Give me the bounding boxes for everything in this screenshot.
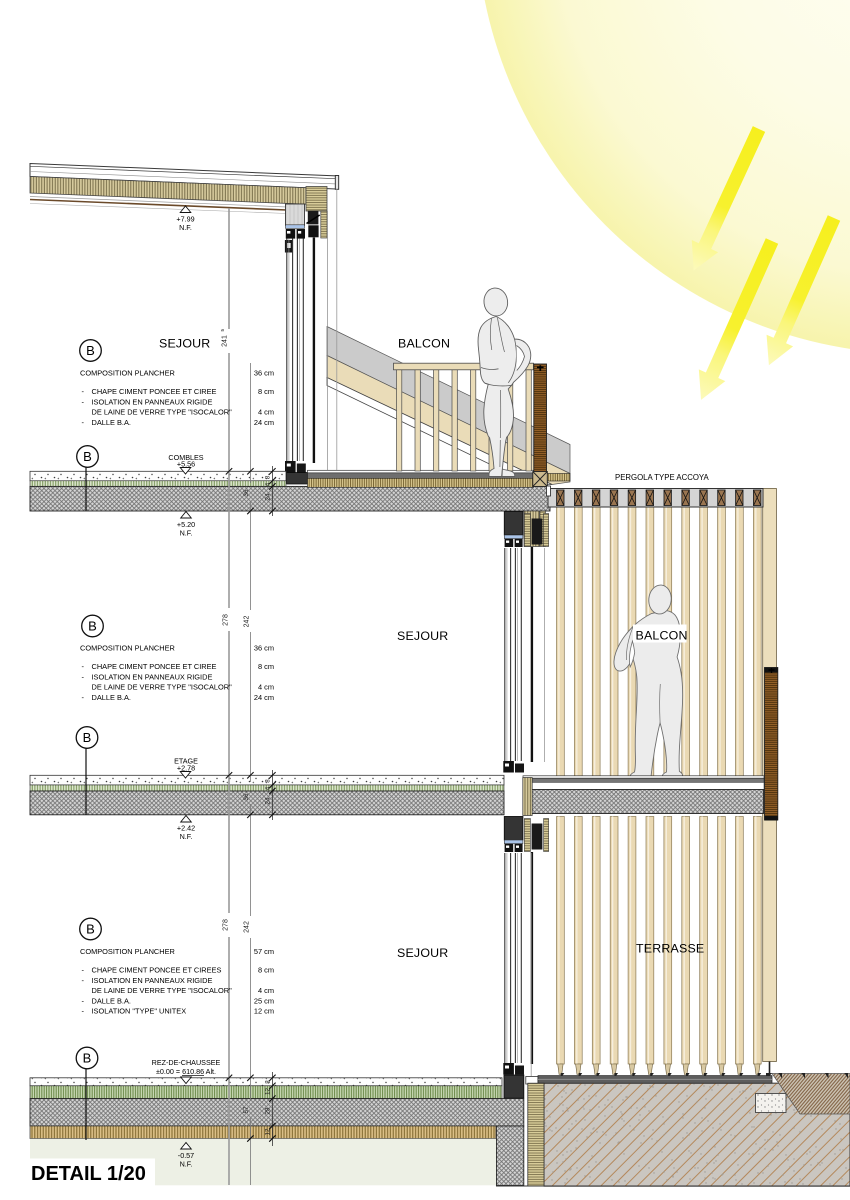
svg-text:8: 8	[265, 475, 272, 479]
svg-text:DALLE B.A.: DALLE B.A.	[92, 996, 131, 1005]
svg-text:24: 24	[265, 797, 272, 804]
svg-text:4 cm: 4 cm	[258, 683, 274, 692]
svg-text:ISOLATION EN PANNEAUX RIGIDE: ISOLATION EN PANNEAUX RIGIDE	[92, 397, 213, 406]
svg-text:SEJOUR: SEJOUR	[397, 946, 448, 960]
svg-text:B: B	[83, 730, 92, 745]
svg-text:5: 5	[220, 329, 225, 332]
svg-text:12: 12	[265, 1088, 272, 1095]
svg-text:28: 28	[265, 1107, 272, 1114]
svg-text:8 cm: 8 cm	[258, 387, 274, 396]
svg-text:ISOLATION EN PANNEAUX RIGIDE: ISOLATION EN PANNEAUX RIGIDE	[92, 672, 213, 681]
svg-text:SEJOUR: SEJOUR	[159, 337, 210, 351]
svg-text:B: B	[83, 449, 92, 464]
svg-text:COMPOSITION PLANCHER: COMPOSITION PLANCHER	[80, 644, 175, 653]
svg-text:12 cm: 12 cm	[254, 1007, 274, 1016]
svg-text:DE LAINE DE VERRE TYPE "ISOCAL: DE LAINE DE VERRE TYPE "ISOCALOR"	[92, 683, 233, 692]
svg-text:TERRASSE: TERRASSE	[636, 942, 704, 956]
svg-text:SEJOUR: SEJOUR	[397, 629, 448, 643]
svg-text:242: 242	[244, 921, 251, 933]
svg-text:36: 36	[243, 489, 250, 496]
svg-text:N.F.: N.F.	[180, 1160, 193, 1169]
svg-text:4: 4	[265, 786, 272, 790]
svg-text:DALLE B.A.: DALLE B.A.	[92, 418, 131, 427]
svg-text:DE LAINE DE VERRE TYPE "ISOCAL: DE LAINE DE VERRE TYPE "ISOCALOR"	[92, 986, 233, 995]
svg-text:8 cm: 8 cm	[258, 966, 274, 975]
svg-text:36: 36	[243, 793, 250, 800]
svg-text:24: 24	[265, 493, 272, 500]
svg-text:4 cm: 4 cm	[258, 408, 274, 417]
svg-text:8: 8	[265, 779, 272, 783]
svg-text:57 cm: 57 cm	[254, 947, 274, 956]
svg-text:B: B	[86, 922, 95, 937]
svg-text:12: 12	[265, 1128, 272, 1135]
svg-text:57: 57	[243, 1106, 250, 1113]
svg-text:24 cm: 24 cm	[254, 693, 274, 702]
svg-text:BALCON: BALCON	[398, 337, 450, 351]
svg-text:COMPOSITION PLANCHER: COMPOSITION PLANCHER	[80, 369, 175, 378]
svg-text:278: 278	[223, 614, 230, 626]
svg-text:ISOLATION "TYPE" UNITEX: ISOLATION "TYPE" UNITEX	[92, 1007, 187, 1016]
svg-text:CHAPE CIMENT PONCEE ET CIREES: CHAPE CIMENT PONCEE ET CIREES	[92, 966, 222, 975]
svg-text:DETAIL 1/20: DETAIL 1/20	[31, 1163, 146, 1185]
svg-text:N.F.: N.F.	[180, 529, 193, 538]
svg-text:N.F.: N.F.	[179, 223, 192, 232]
svg-text:25 cm: 25 cm	[254, 996, 274, 1005]
svg-text:B: B	[88, 619, 97, 634]
svg-text:8: 8	[265, 1080, 272, 1084]
svg-text:4: 4	[265, 482, 272, 486]
svg-text:REZ-DE-CHAUSSEE: REZ-DE-CHAUSSEE	[152, 1058, 221, 1067]
svg-text:ISOLATION EN PANNEAUX RIGIDE: ISOLATION EN PANNEAUX RIGIDE	[92, 976, 213, 985]
svg-text:36 cm: 36 cm	[254, 369, 274, 378]
svg-text:±0.00 = 610.86 Alt.: ±0.00 = 610.86 Alt.	[156, 1067, 216, 1076]
svg-text:CHAPE CIMENT PONCEE ET CIREE: CHAPE CIMENT PONCEE ET CIREE	[92, 662, 217, 671]
svg-text:B: B	[83, 1051, 92, 1066]
svg-text:CHAPE CIMENT PONCEE ET CIREE: CHAPE CIMENT PONCEE ET CIREE	[92, 387, 217, 396]
svg-text:24 cm: 24 cm	[254, 418, 274, 427]
svg-text:PERGOLA TYPE ACCOYA: PERGOLA TYPE ACCOYA	[615, 473, 710, 482]
svg-text:278: 278	[223, 919, 230, 931]
svg-text:BALCON: BALCON	[636, 629, 688, 643]
svg-text:4 cm: 4 cm	[258, 986, 274, 995]
svg-text:8 cm: 8 cm	[258, 662, 274, 671]
svg-text:36 cm: 36 cm	[254, 644, 274, 653]
svg-text:DALLE B.A.: DALLE B.A.	[92, 693, 131, 702]
svg-text:N.F.: N.F.	[180, 832, 193, 841]
svg-text:241: 241	[222, 335, 229, 347]
svg-text:DE LAINE DE VERRE TYPE "ISOCAL: DE LAINE DE VERRE TYPE "ISOCALOR"	[92, 408, 233, 417]
svg-text:B: B	[86, 343, 95, 358]
svg-text:242: 242	[244, 616, 251, 628]
svg-text:COMPOSITION PLANCHER: COMPOSITION PLANCHER	[80, 947, 175, 956]
